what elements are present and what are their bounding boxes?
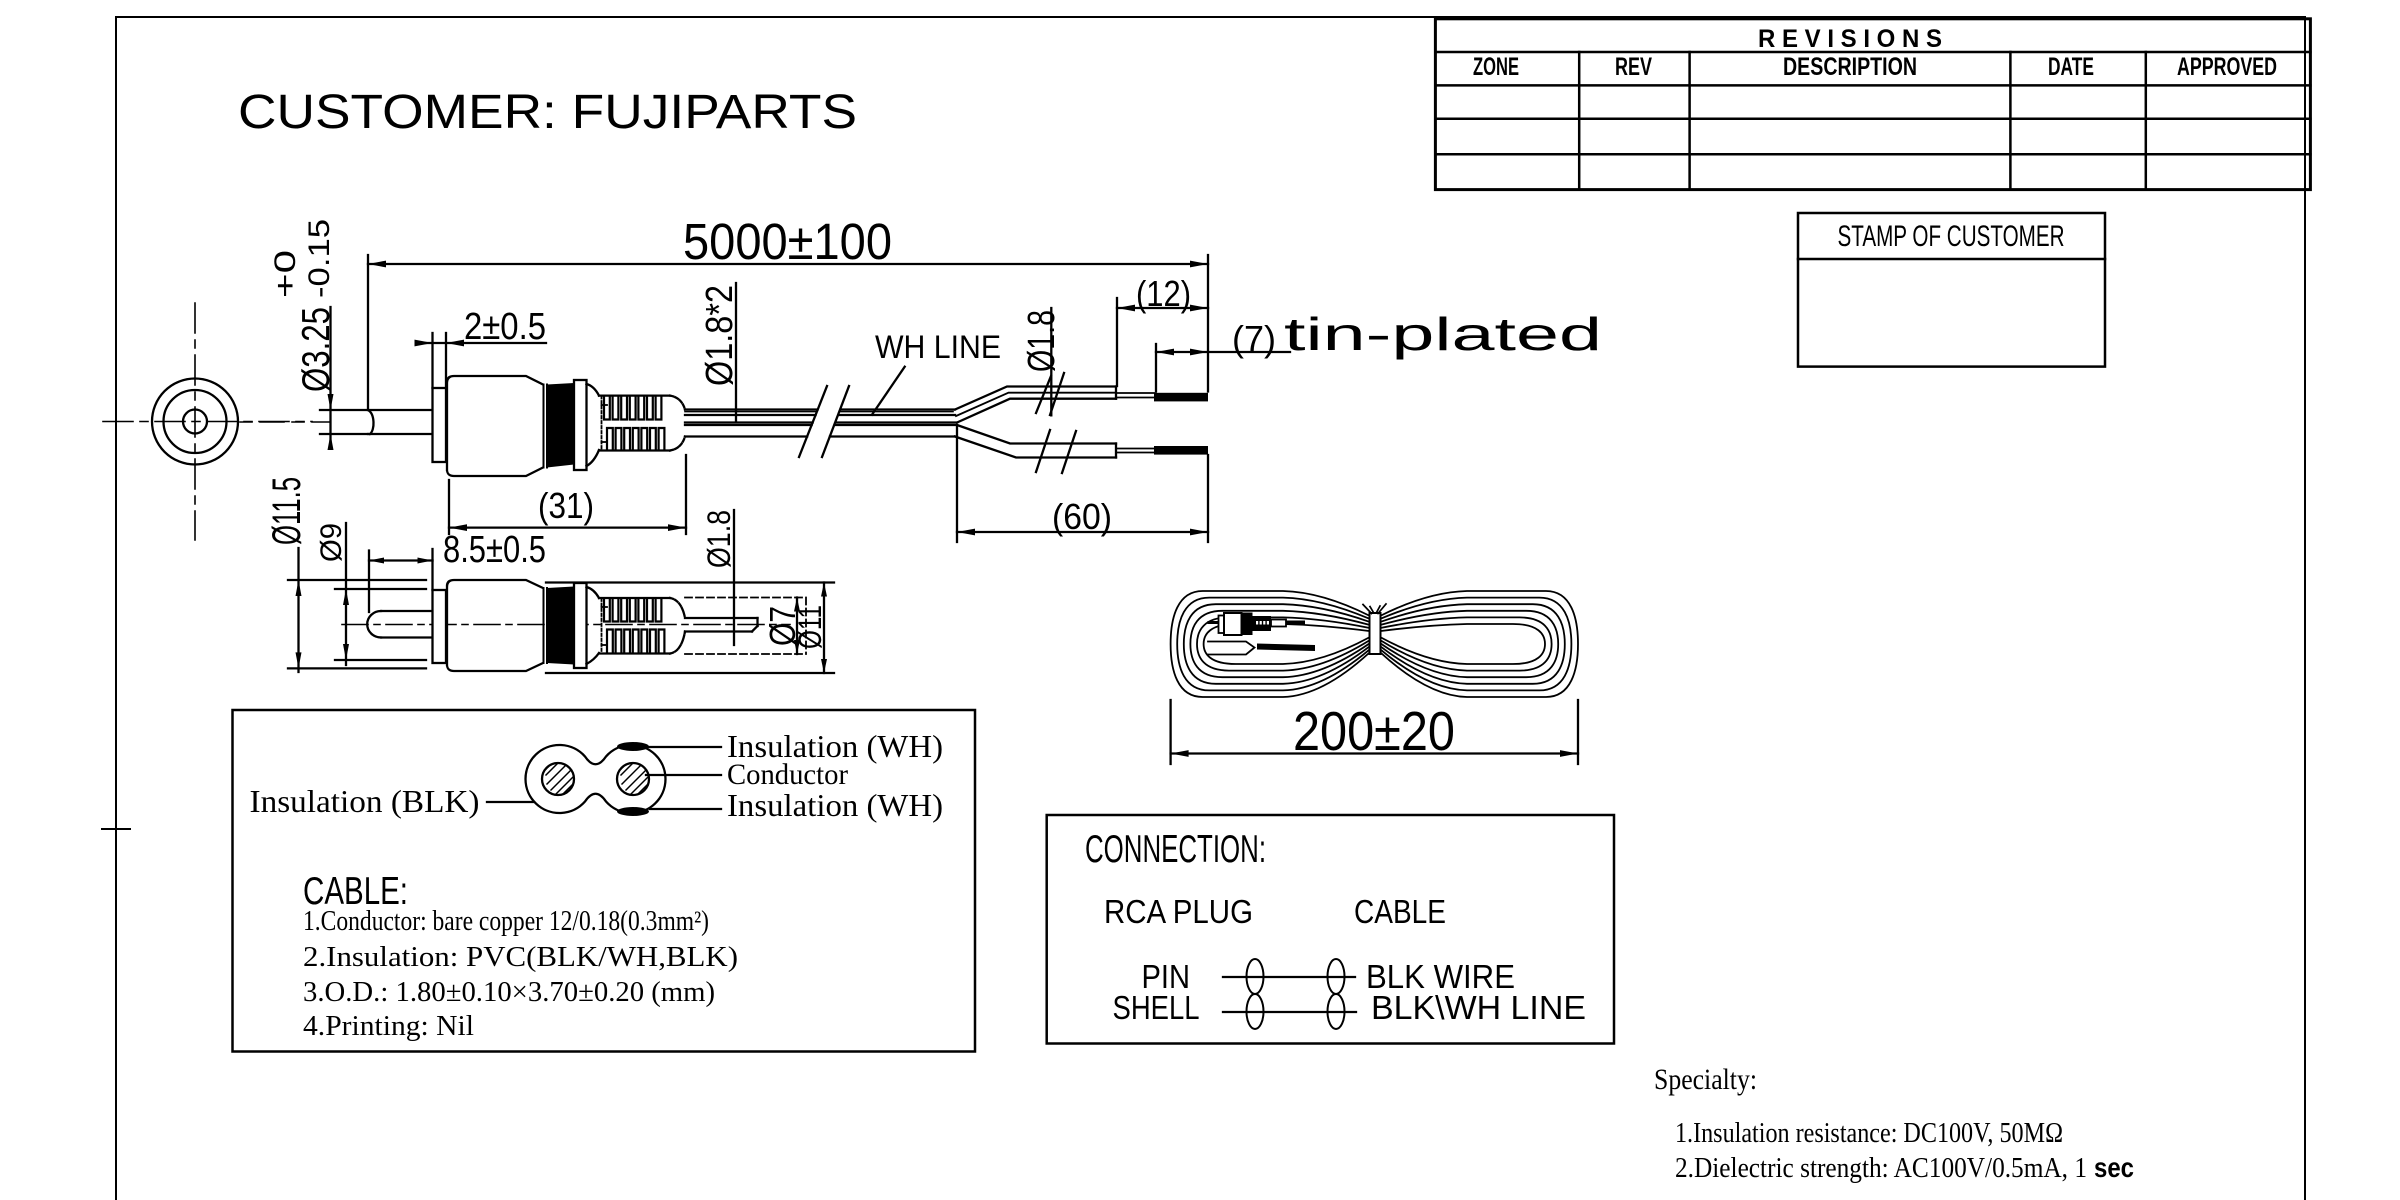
svg-text:(7): (7)	[1232, 318, 1276, 359]
svg-text:BLK\WH LINE: BLK\WH LINE	[1371, 989, 1586, 1026]
svg-text:(12): (12)	[1136, 273, 1191, 314]
svg-text:Insulation (WH): Insulation (WH)	[727, 787, 943, 823]
svg-text:(31): (31)	[538, 485, 594, 526]
svg-text:5000±100: 5000±100	[683, 213, 892, 270]
svg-text:8.5±0.5: 8.5±0.5	[443, 529, 546, 571]
svg-text:STAMP OF CUSTOMER: STAMP OF CUSTOMER	[1838, 220, 2065, 253]
svg-text:CABLE: CABLE	[1354, 893, 1446, 930]
svg-text:2.Insulation: PVC(BLK/WH,BLK): 2.Insulation: PVC(BLK/WH,BLK)	[303, 942, 738, 973]
svg-text:CONNECTION:: CONNECTION:	[1085, 828, 1266, 871]
svg-text:Ø1.8*2: Ø1.8*2	[699, 285, 741, 386]
svg-text:+0: +0	[269, 250, 302, 298]
svg-text:Specialty:: Specialty:	[1654, 1063, 1757, 1096]
svg-text:REV: REV	[1615, 53, 1652, 81]
svg-text:Ø1.8: Ø1.8	[701, 510, 737, 568]
svg-text:CUSTOMER: FUJIPARTS: CUSTOMER: FUJIPARTS	[238, 86, 857, 139]
svg-text:-0.15: -0.15	[303, 219, 336, 298]
svg-text:R E V I S I O N S: R E V I S I O N S	[1758, 25, 1942, 53]
svg-text:SHELL: SHELL	[1113, 989, 1200, 1026]
svg-text:4.Printing: Nil: 4.Printing: Nil	[303, 1011, 474, 1042]
svg-text:1.Conductor: bare copper 12/0.: 1.Conductor: bare copper 12/0.18(0.3mm²)	[303, 906, 709, 937]
svg-text:ZONE: ZONE	[1473, 53, 1519, 81]
svg-text:APPROVED: APPROVED	[2177, 53, 2277, 81]
svg-text:tin-plated: tin-plated	[1284, 308, 1602, 360]
svg-text:1.Insulation resistance: DC100: 1.Insulation resistance: DC100V, 50MΩ	[1675, 1118, 2063, 1149]
svg-text:Ø11: Ø11	[792, 605, 828, 649]
svg-text:WH LINE: WH LINE	[875, 329, 1001, 365]
svg-text:2.Dielectric strength: AC100V/: 2.Dielectric strength: AC100V/0.5mA, 1	[1675, 1153, 2087, 1184]
svg-text:2±0.5: 2±0.5	[464, 306, 546, 348]
svg-text:Ø9: Ø9	[315, 523, 348, 562]
svg-text:3.O.D.: 1.80±0.10×3.70±0.20 (m: 3.O.D.: 1.80±0.10×3.70±0.20 (mm)	[303, 977, 715, 1008]
svg-text:sec: sec	[2094, 1152, 2134, 1183]
svg-text:(60): (60)	[1052, 496, 1112, 537]
svg-text:Ø1.8: Ø1.8	[1021, 310, 1063, 372]
svg-text:Ø3.25: Ø3.25	[295, 307, 338, 392]
svg-text:Insulation (BLK): Insulation (BLK)	[250, 783, 480, 819]
svg-text:200±20: 200±20	[1293, 700, 1455, 762]
svg-text:RCA PLUG: RCA PLUG	[1104, 893, 1253, 930]
svg-text:Ø11.5: Ø11.5	[265, 477, 309, 545]
svg-text:DESCRIPTION: DESCRIPTION	[1783, 53, 1917, 81]
svg-text:DATE: DATE	[2048, 53, 2094, 81]
